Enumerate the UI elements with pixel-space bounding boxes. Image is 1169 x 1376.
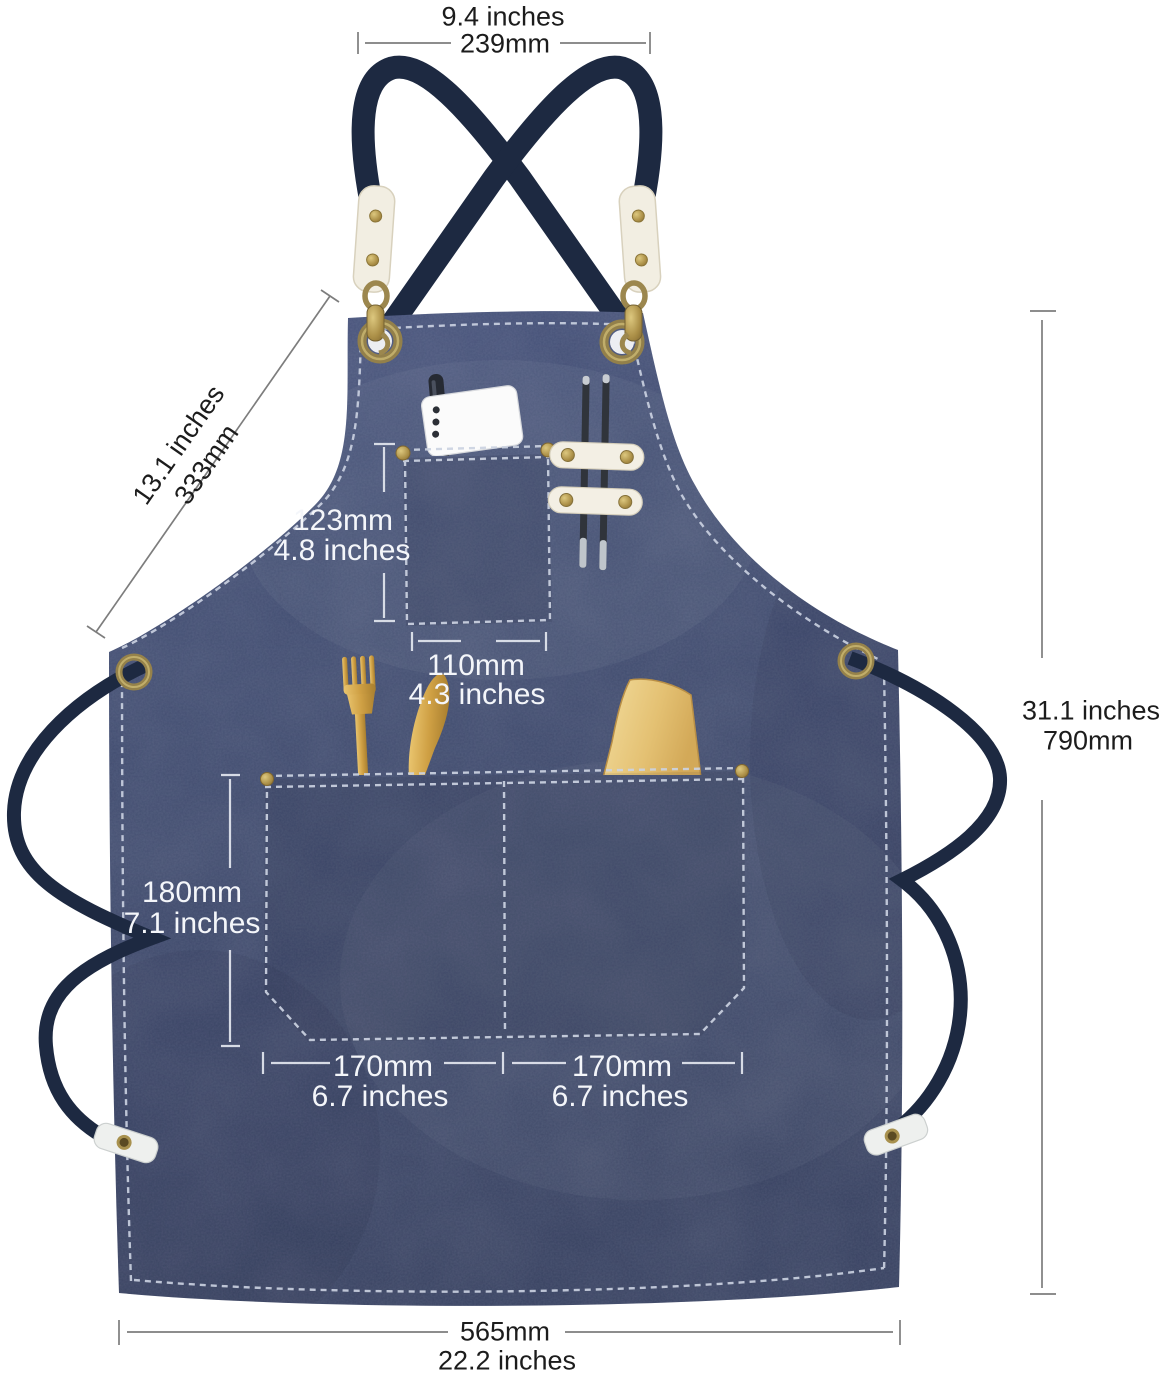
apron-body [0,0,1169,1376]
rivet [632,210,645,223]
screw [561,448,574,461]
screw [560,493,573,506]
phone [420,385,523,458]
screw [620,450,633,463]
rivet [635,254,648,267]
rivet [396,446,410,460]
eyelet [117,1135,132,1150]
rivet [369,210,382,223]
rivet [261,773,274,786]
apron-dimension-diagram: 9.4 inches 239mm 13.1 inches 333mm 123mm… [0,0,1169,1376]
rivet [366,254,379,267]
dim-tick [321,290,339,302]
waist-pocket [261,765,749,1043]
dim-tick [87,626,105,638]
apron-illustration [0,0,1169,1376]
strap-leather-end-right [618,185,661,293]
screw [619,495,632,508]
rivet [736,765,749,778]
strap-leather-end-left [352,185,395,293]
chest-pocket [396,443,555,626]
